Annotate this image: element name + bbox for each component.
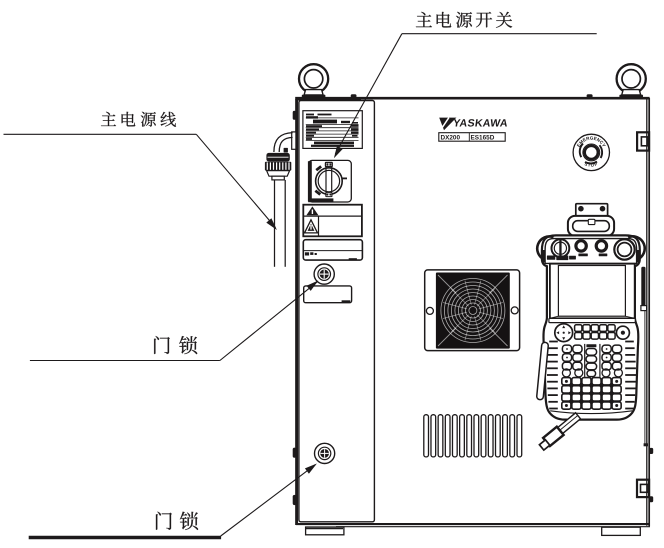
svg-text:ES165D: ES165D [471, 135, 495, 142]
svg-text:DX200: DX200 [441, 135, 461, 142]
svg-text:YASKAWA: YASKAWA [452, 118, 508, 130]
